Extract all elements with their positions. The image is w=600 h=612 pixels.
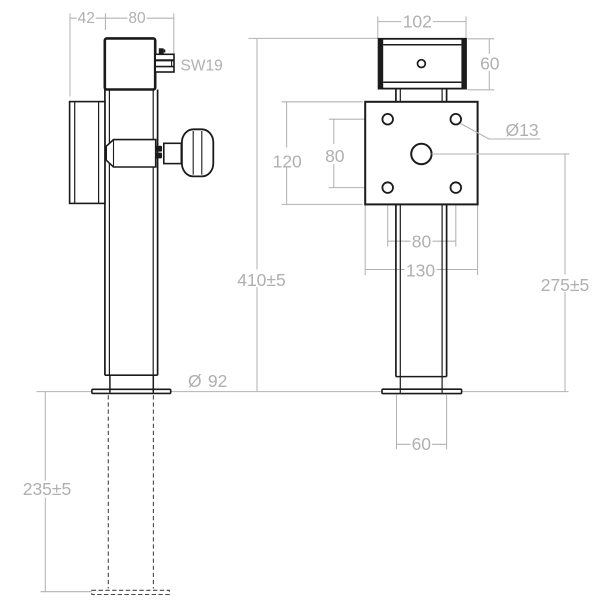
svg-text:SW19: SW19 — [181, 58, 223, 75]
svg-text:42: 42 — [78, 10, 95, 27]
svg-text:80: 80 — [325, 146, 345, 166]
svg-text:Ø13: Ø13 — [506, 120, 539, 140]
svg-text:60: 60 — [412, 434, 432, 454]
svg-text:80: 80 — [128, 10, 146, 27]
svg-text:60: 60 — [480, 54, 500, 74]
svg-text:410±5: 410±5 — [237, 270, 286, 290]
svg-text:80: 80 — [412, 231, 432, 251]
svg-text:Ø 92: Ø 92 — [188, 371, 227, 391]
svg-text:275±5: 275±5 — [541, 275, 590, 295]
svg-text:102: 102 — [403, 11, 432, 31]
svg-text:130: 130 — [406, 261, 435, 281]
svg-text:235±5: 235±5 — [23, 479, 72, 499]
svg-text:120: 120 — [273, 151, 302, 171]
